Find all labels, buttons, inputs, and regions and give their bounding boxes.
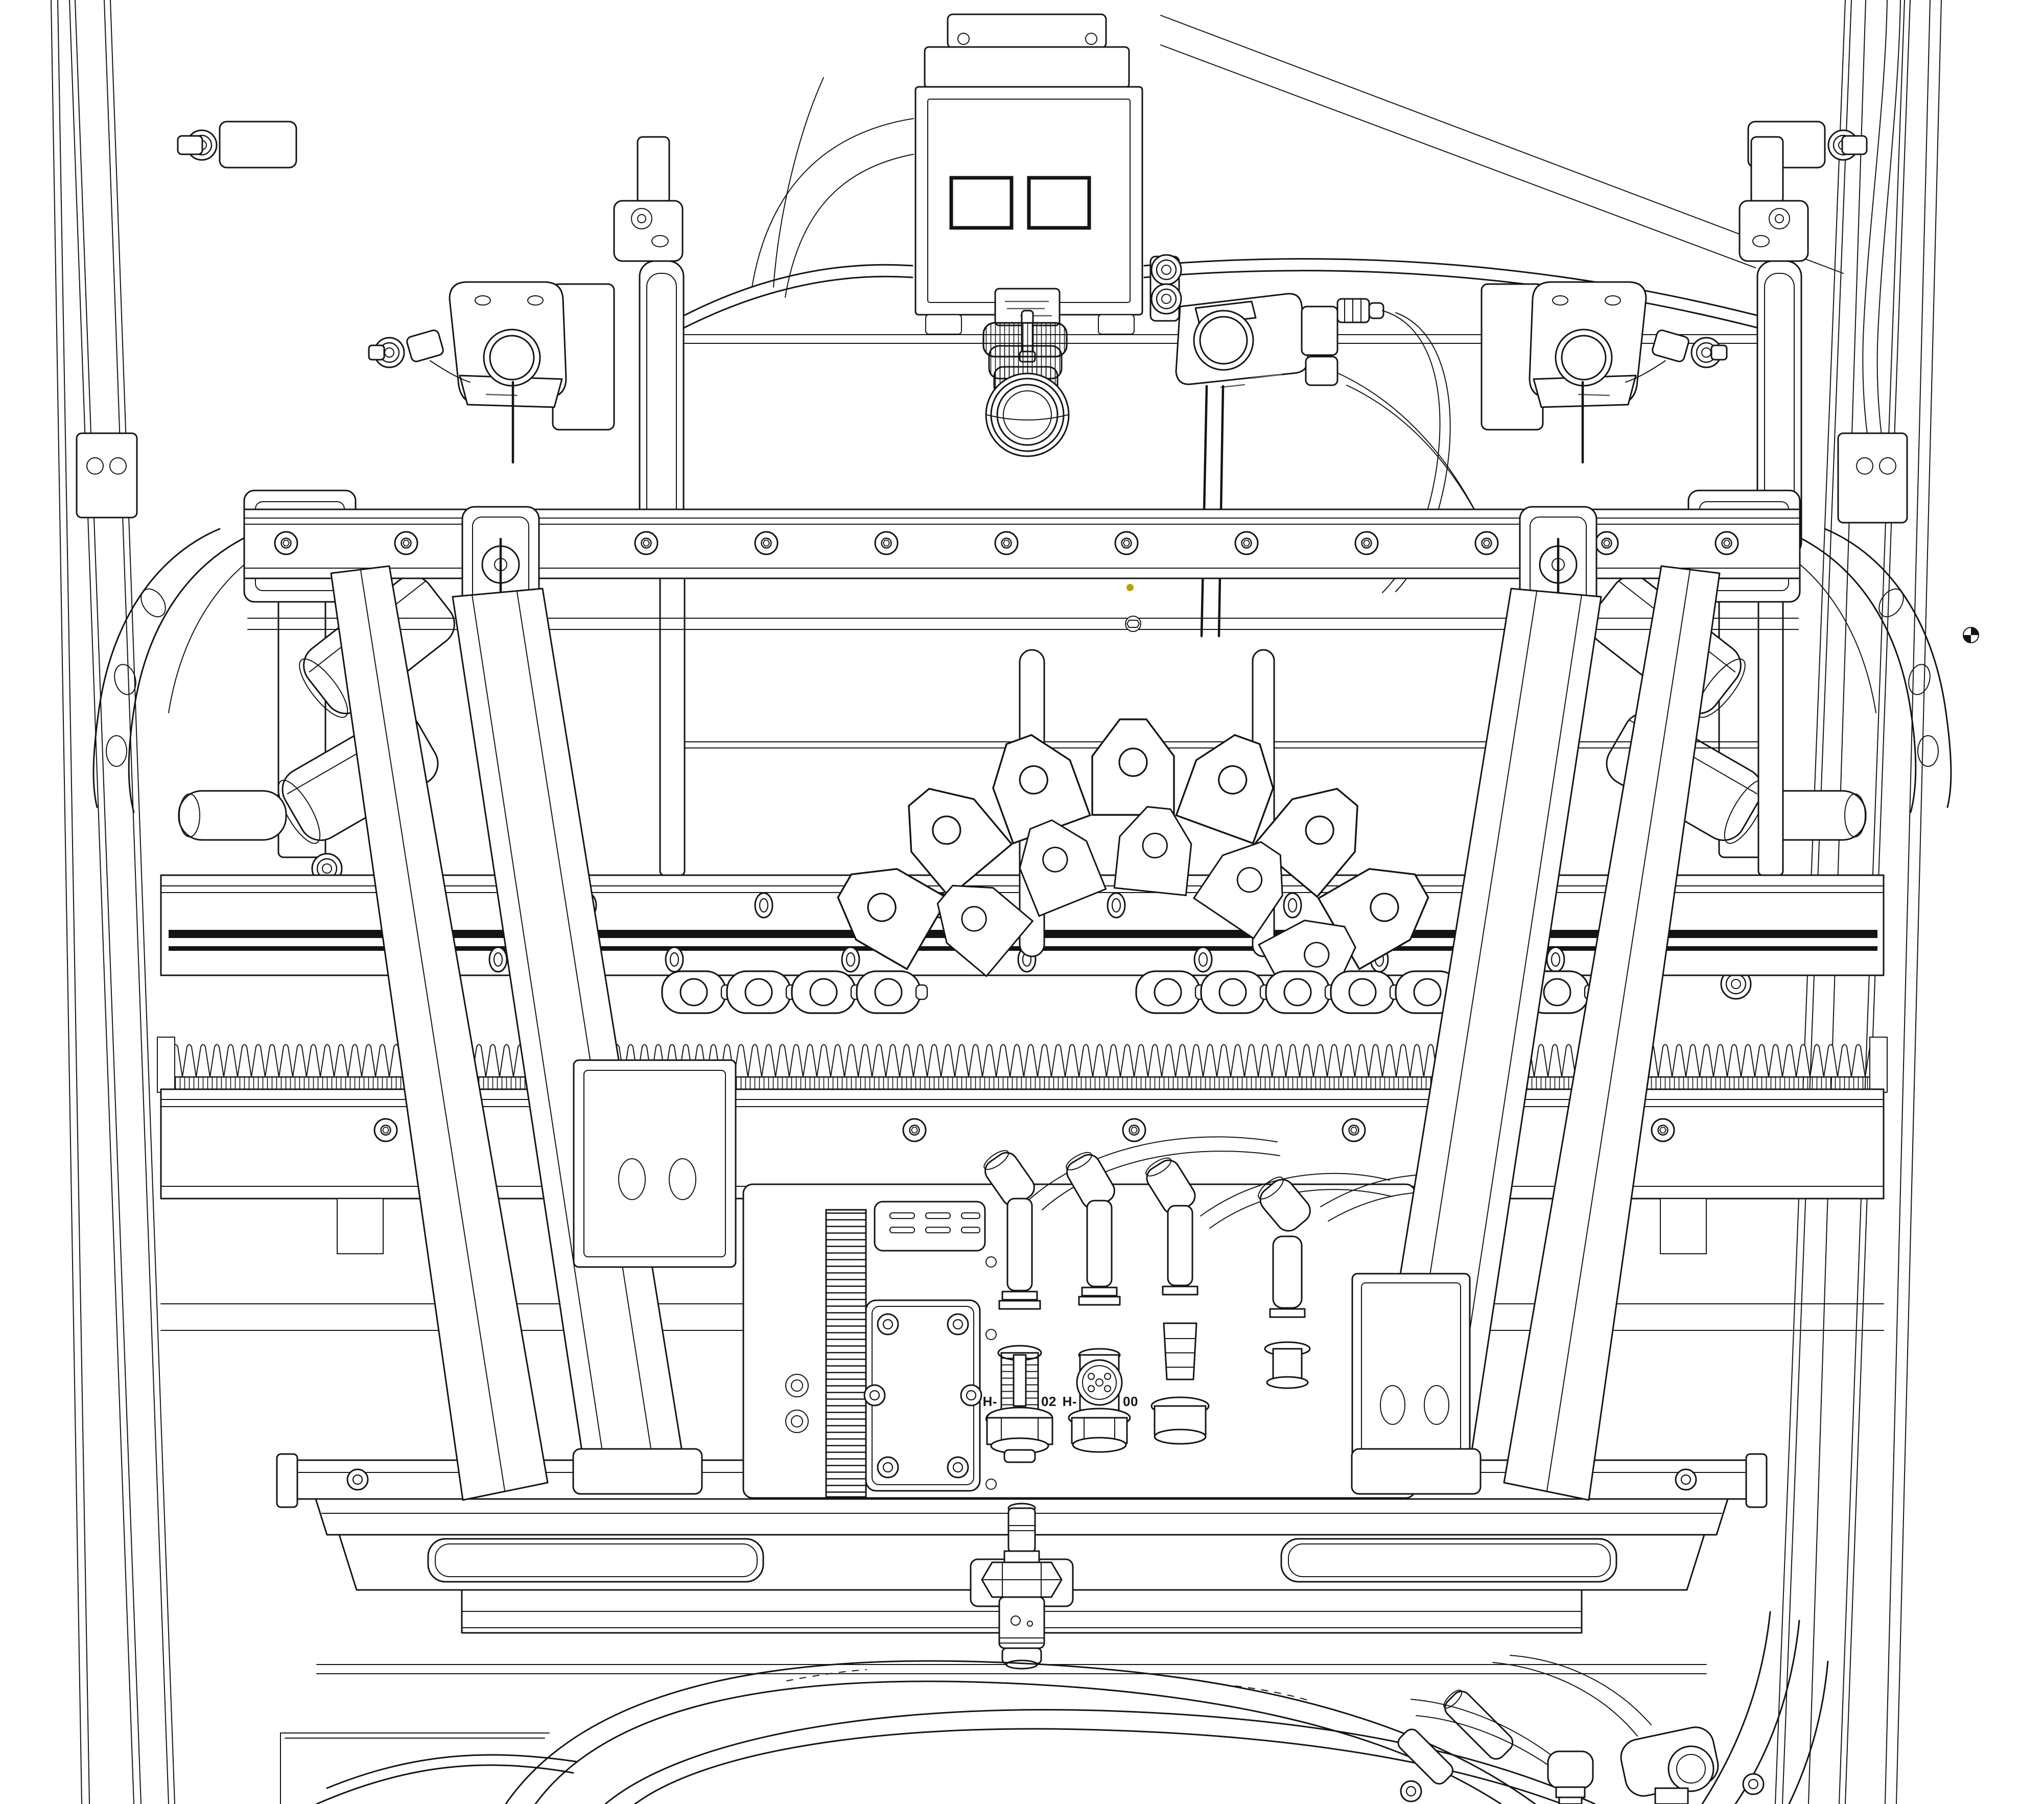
controller-box [915, 14, 1142, 334]
side-mount-plate-right [1838, 433, 1907, 523]
cover-plate [864, 1300, 981, 1491]
arm-foot-right [1352, 1449, 1481, 1494]
center-camera [983, 289, 1069, 456]
vented-box [875, 1202, 985, 1251]
connector-label-2-prefix: H- [1063, 1394, 1077, 1409]
arm-bracket-left [574, 1060, 736, 1267]
bottom-cable-harness [317, 1612, 1828, 1804]
datum-target-mark [1963, 627, 1979, 643]
canopy-tower-left [614, 137, 684, 557]
connector-label-2-suffix: 00 [1123, 1394, 1138, 1409]
connector-label-1-prefix: H- [983, 1394, 997, 1409]
accent-dot [1126, 584, 1134, 591]
connector-label-1-suffix: 02 [1041, 1394, 1056, 1409]
side-mount-plate-left [77, 433, 137, 518]
bottom-pneumatic-fittings [1395, 1655, 1764, 1804]
machine-line-drawing: H- 02 H- 00 [0, 0, 2044, 1804]
nozzle-unit-right [1482, 282, 1727, 462]
timing-belt-strip [826, 1210, 866, 1497]
nozzle-unit-left [369, 282, 614, 462]
arm-foot-left [573, 1449, 702, 1494]
cad-drawing-page: H- 02 H- 00 [0, 0, 2044, 1804]
